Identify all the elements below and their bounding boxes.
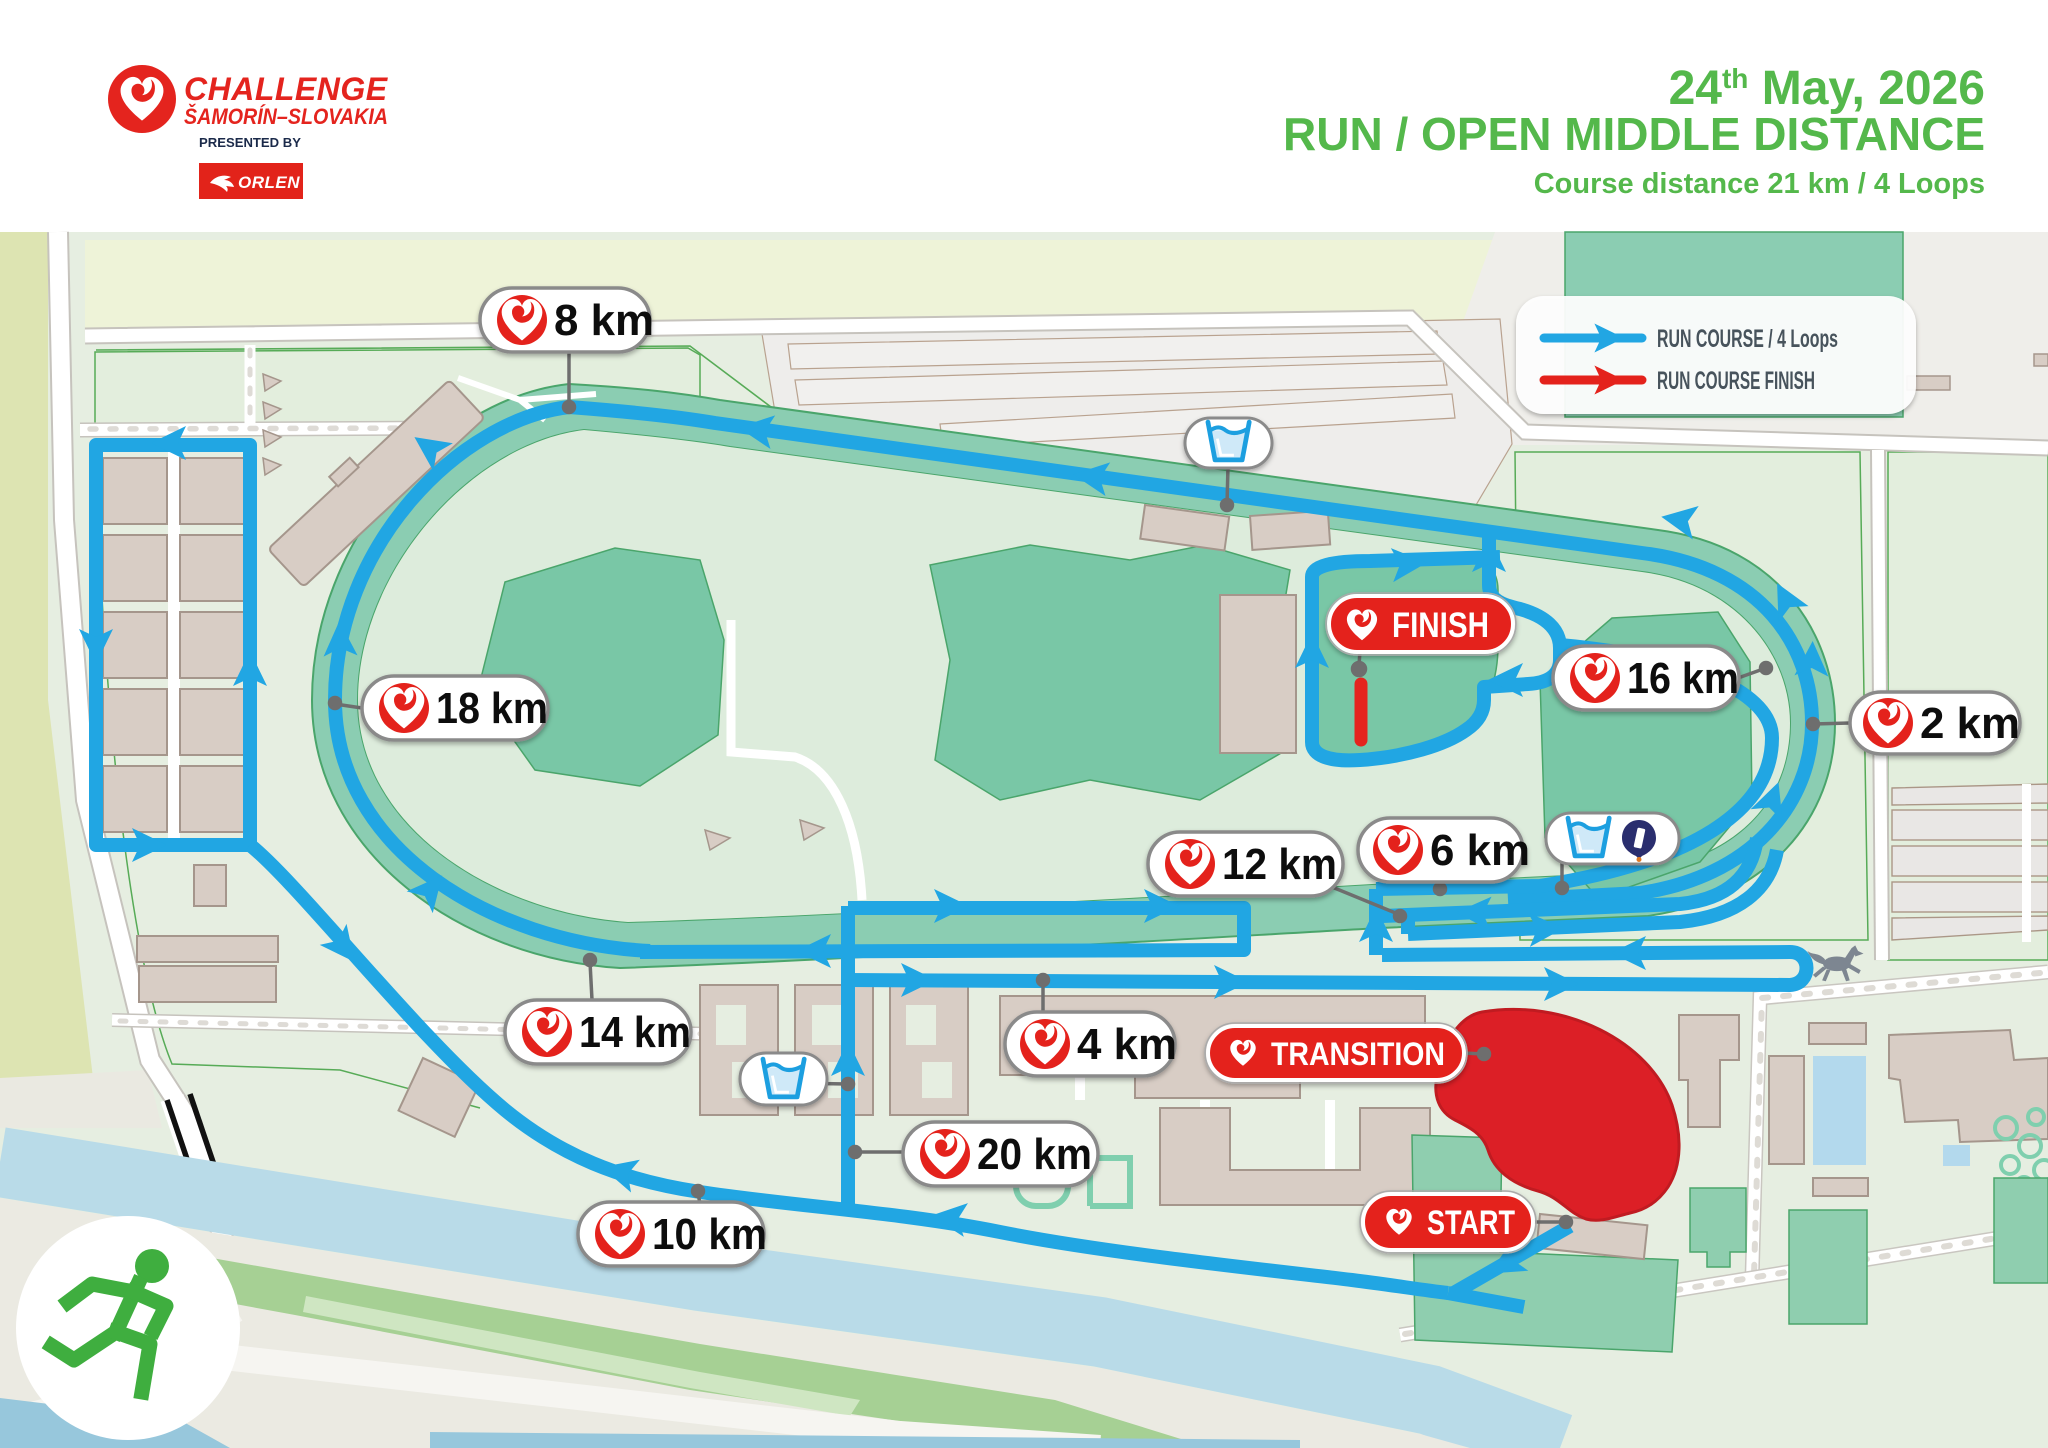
svg-text:TRANSITION: TRANSITION — [1271, 1036, 1445, 1072]
svg-text:ŠAMORÍN–SLOVAKIA: ŠAMORÍN–SLOVAKIA — [184, 104, 388, 129]
svg-text:2 km: 2 km — [1920, 699, 2020, 748]
svg-text:8 km: 8 km — [554, 296, 654, 345]
svg-text:RUN / OPEN MIDDLE DISTANCE: RUN / OPEN MIDDLE DISTANCE — [1283, 108, 1985, 160]
svg-text:18 km: 18 km — [436, 684, 548, 733]
svg-text:12 km: 12 km — [1222, 840, 1337, 889]
svg-text:FINISH: FINISH — [1392, 606, 1489, 645]
svg-text:14 km: 14 km — [579, 1008, 691, 1057]
svg-text:10 km: 10 km — [652, 1210, 767, 1259]
svg-text:START: START — [1427, 1204, 1515, 1242]
svg-text:16 km: 16 km — [1627, 654, 1739, 703]
svg-text:4 km: 4 km — [1077, 1020, 1177, 1069]
svg-text:PRESENTED BY: PRESENTED BY — [199, 135, 301, 150]
svg-text:RUN COURSE FINISH: RUN COURSE FINISH — [1657, 367, 1815, 395]
svg-text:Course distance 21 km / 4 Loop: Course distance 21 km / 4 Loops — [1534, 168, 1985, 200]
svg-text:20 km: 20 km — [977, 1130, 1092, 1179]
svg-text:ORLEN: ORLEN — [238, 173, 300, 192]
svg-text:RUN COURSE / 4 Loops: RUN COURSE / 4 Loops — [1657, 325, 1838, 353]
svg-text:6 km: 6 km — [1430, 826, 1530, 875]
svg-text:CHALLENGE: CHALLENGE — [184, 71, 389, 107]
